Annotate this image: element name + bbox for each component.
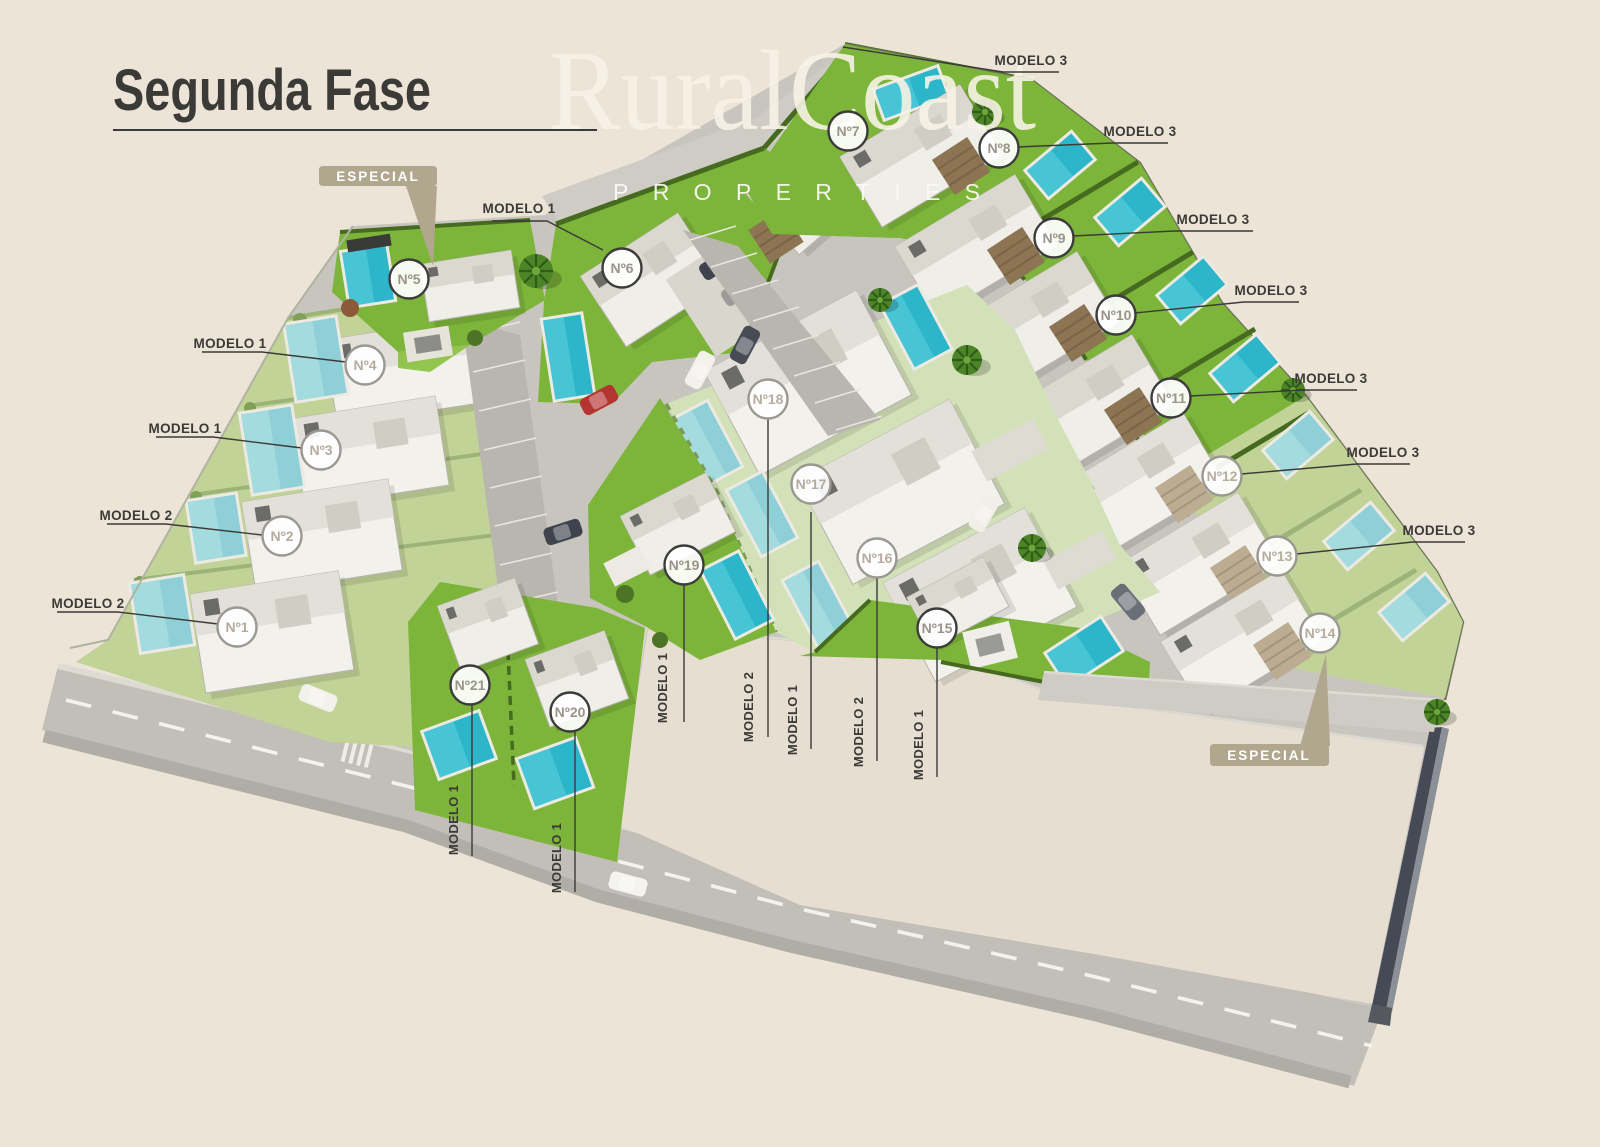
svg-text:MODELO 2: MODELO 2 <box>851 697 866 767</box>
svg-text:Nº12: Nº12 <box>1207 468 1238 484</box>
svg-text:MODELO 3: MODELO 3 <box>1235 283 1308 298</box>
svg-text:Nº10: Nº10 <box>1101 307 1132 323</box>
svg-text:MODELO 1: MODELO 1 <box>911 710 926 780</box>
svg-text:ESPECIAL: ESPECIAL <box>1227 748 1311 763</box>
svg-text:MODELO 2: MODELO 2 <box>52 596 125 611</box>
svg-text:Nº16: Nº16 <box>862 550 893 566</box>
svg-text:MODELO 3: MODELO 3 <box>1177 212 1250 227</box>
svg-text:MODELO 2: MODELO 2 <box>100 508 173 523</box>
svg-text:RuralCoast: RuralCoast <box>548 27 1036 154</box>
svg-text:Segunda Fase: Segunda Fase <box>113 58 431 123</box>
svg-text:MODELO 3: MODELO 3 <box>1295 371 1368 386</box>
svg-text:Nº13: Nº13 <box>1262 548 1293 564</box>
svg-text:Nº19: Nº19 <box>669 557 700 573</box>
svg-text:Nº5: Nº5 <box>397 271 420 287</box>
svg-text:MODELO 3: MODELO 3 <box>1403 523 1476 538</box>
svg-text:Nº18: Nº18 <box>753 391 784 407</box>
svg-text:MODELO 1: MODELO 1 <box>446 785 461 855</box>
svg-text:MODELO 1: MODELO 1 <box>483 201 556 216</box>
svg-text:MODELO 1: MODELO 1 <box>785 685 800 755</box>
svg-text:MODELO 1: MODELO 1 <box>194 336 267 351</box>
svg-text:Nº6: Nº6 <box>610 260 633 276</box>
svg-text:MODELO 1: MODELO 1 <box>149 421 222 436</box>
svg-text:Nº2: Nº2 <box>270 528 293 544</box>
svg-text:Nº7: Nº7 <box>836 123 859 139</box>
svg-text:Nº11: Nº11 <box>1156 390 1186 406</box>
svg-text:MODELO 3: MODELO 3 <box>1347 445 1420 460</box>
svg-text:Nº1: Nº1 <box>225 619 248 635</box>
svg-text:Nº20: Nº20 <box>555 704 586 720</box>
svg-text:Nº8: Nº8 <box>987 140 1010 156</box>
svg-text:ESPECIAL: ESPECIAL <box>336 169 420 184</box>
svg-text:Nº15: Nº15 <box>922 620 953 636</box>
svg-text:MODELO 3: MODELO 3 <box>995 53 1068 68</box>
svg-text:Nº4: Nº4 <box>353 357 376 373</box>
svg-text:Nº3: Nº3 <box>309 442 332 458</box>
svg-text:Nº17: Nº17 <box>796 476 827 492</box>
svg-text:Nº14: Nº14 <box>1305 625 1336 641</box>
svg-text:Nº9: Nº9 <box>1042 230 1065 246</box>
svg-text:MODELO 3: MODELO 3 <box>1104 124 1177 139</box>
svg-text:MODELO 2: MODELO 2 <box>741 672 756 742</box>
svg-text:MODELO 1: MODELO 1 <box>655 653 670 723</box>
svg-text:MODELO 1: MODELO 1 <box>549 823 564 893</box>
svg-text:Nº21: Nº21 <box>455 677 486 693</box>
